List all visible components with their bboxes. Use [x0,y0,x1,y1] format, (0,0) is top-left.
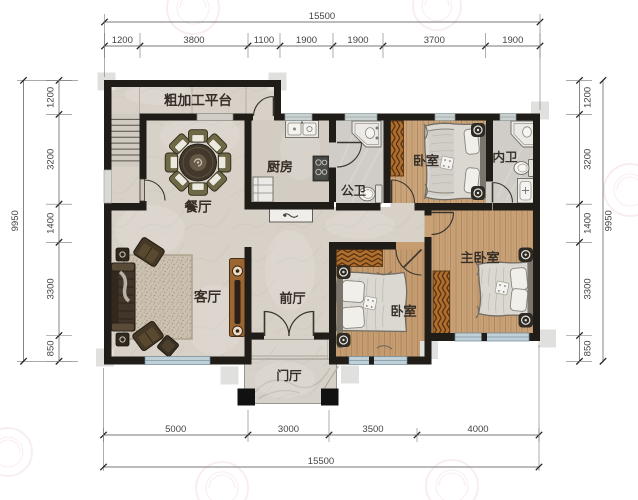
svg-text:3800: 3800 [183,35,204,46]
svg-text:3300: 3300 [583,278,594,299]
svg-text:3200: 3200 [46,149,57,170]
svg-text:3500: 3500 [362,424,383,435]
svg-text:15500: 15500 [308,456,334,467]
svg-text:3200: 3200 [583,149,594,170]
svg-text:1400: 1400 [46,213,57,234]
svg-text:1200: 1200 [112,35,133,46]
svg-text:9950: 9950 [10,210,21,231]
svg-text:3300: 3300 [46,278,57,299]
svg-text:1200: 1200 [46,87,57,108]
svg-text:850: 850 [583,340,594,356]
svg-text:4000: 4000 [467,424,488,435]
svg-text:1900: 1900 [296,35,317,46]
svg-text:5000: 5000 [165,424,186,435]
svg-text:1900: 1900 [347,35,368,46]
svg-text:9950: 9950 [604,210,615,231]
svg-text:1100: 1100 [254,35,274,46]
svg-text:3700: 3700 [424,35,445,46]
svg-text:1900: 1900 [502,35,523,46]
svg-text:850: 850 [46,340,57,356]
svg-text:15500: 15500 [309,11,335,22]
svg-text:1200: 1200 [583,87,594,108]
svg-text:3000: 3000 [278,424,299,435]
svg-text:1400: 1400 [583,213,594,234]
